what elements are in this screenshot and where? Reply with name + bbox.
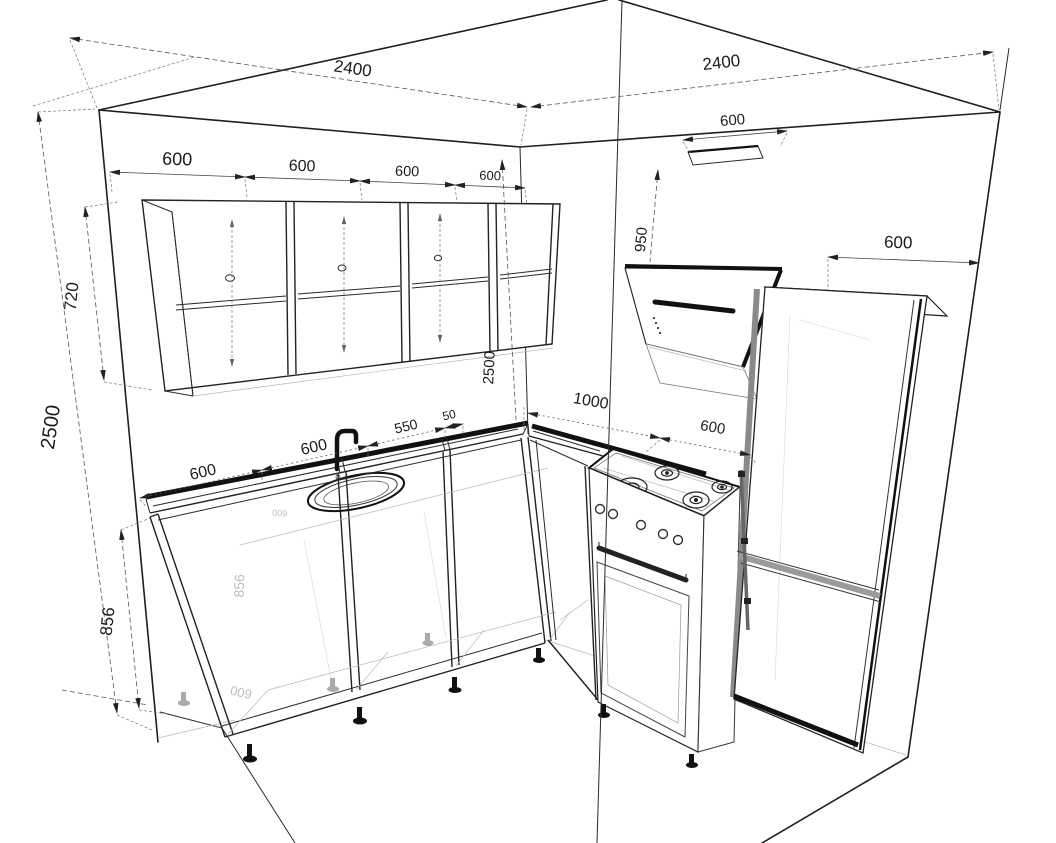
hood-vent: [688, 146, 763, 165]
kitchen-perspective-svg: 856 600 600 600 856: [0, 0, 1056, 843]
dim-label-upper-600-2: 600: [289, 158, 316, 176]
dim-label-upper-600-4: 600: [479, 168, 501, 184]
cabinet-feet-back: [178, 633, 434, 706]
dim-label-counter-550: 550: [393, 416, 420, 437]
dim-label-hood-600: 600: [719, 111, 745, 130]
gas-stove: [589, 449, 740, 768]
dim-label-height-2500: 2500: [37, 404, 65, 451]
ghost-856-left-cabinet: 856: [231, 574, 248, 598]
dim-label-upper-600-3: 600: [395, 164, 420, 181]
dim-label-counter-600-2: 600: [299, 436, 329, 459]
ghost-600-floor: 600: [229, 683, 254, 702]
dim-label-counter-50: 50: [441, 407, 457, 424]
cabinet-feet-front: [243, 648, 545, 763]
ghost-600-counter: 600: [272, 507, 288, 518]
dim-label-upper-600-1: 600: [162, 148, 193, 169]
dim-label-fridge-600: 600: [884, 233, 913, 253]
dim-label-corner-2500: 2500: [480, 351, 499, 385]
dim-label-base-height-856: 856: [97, 606, 119, 636]
dim-label-wall-left-2400: 2400: [333, 56, 373, 80]
kitchen-drawing-canvas: 856 600 600 600 856: [0, 0, 1056, 843]
refrigerator: [733, 287, 947, 753]
dim-label-hood-950: 950: [632, 226, 651, 252]
dim-label-right-600: 600: [699, 417, 727, 438]
dim-label-right-1000: 1000: [572, 390, 610, 413]
dim-label-upper-height-720: 720: [61, 281, 83, 311]
dim-label-wall-right-2400: 2400: [702, 51, 742, 74]
dim-label-counter-600-1: 600: [188, 461, 218, 484]
